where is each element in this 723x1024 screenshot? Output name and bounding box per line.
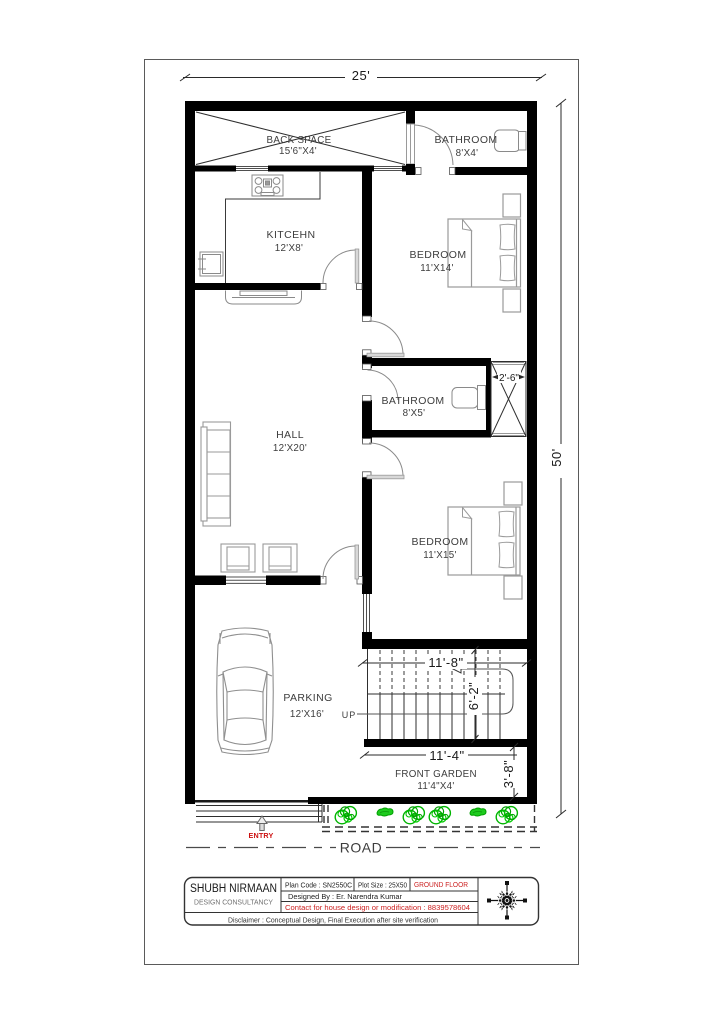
svg-text:12'X16': 12'X16' xyxy=(290,709,324,720)
svg-text:12'X20': 12'X20' xyxy=(273,443,307,454)
svg-text:50': 50' xyxy=(549,448,564,466)
svg-text:11'X14': 11'X14' xyxy=(420,263,453,274)
svg-text:15'6"X4': 15'6"X4' xyxy=(279,146,317,157)
svg-text:11'X15': 11'X15' xyxy=(423,550,456,561)
svg-text:GROUND FLOOR: GROUND FLOOR xyxy=(414,880,468,889)
svg-text:8'X4': 8'X4' xyxy=(456,148,479,159)
svg-text:HALL: HALL xyxy=(276,429,304,441)
svg-text:ROAD: ROAD xyxy=(340,840,382,856)
svg-text:11'-4": 11'-4" xyxy=(429,748,464,763)
svg-text:BEDROOM: BEDROOM xyxy=(409,249,466,261)
svg-text:Plot Size : 25X50: Plot Size : 25X50 xyxy=(358,881,407,890)
svg-text:11'-8": 11'-8" xyxy=(428,655,463,670)
svg-text:BATHROOM: BATHROOM xyxy=(434,134,497,146)
svg-text:DESIGN CONSULTANCY: DESIGN CONSULTANCY xyxy=(194,900,273,907)
svg-text:KITCEHN: KITCEHN xyxy=(267,229,316,241)
svg-text:Plan Code : SN2550C: Plan Code : SN2550C xyxy=(285,881,352,890)
svg-text:BACK SPACE: BACK SPACE xyxy=(267,135,332,146)
svg-text:3'-8": 3'-8" xyxy=(501,760,516,788)
svg-text:BEDROOM: BEDROOM xyxy=(411,536,468,548)
svg-text:Disclaimer : Conceptual Design: Disclaimer : Conceptual Design, Final Ex… xyxy=(228,916,438,925)
svg-text:Designed By : Er. Narendra Kum: Designed By : Er. Narendra Kumar xyxy=(288,892,402,901)
svg-text:ENTRY: ENTRY xyxy=(248,831,273,840)
svg-text:12'X8': 12'X8' xyxy=(275,243,303,254)
svg-text:8'X5': 8'X5' xyxy=(403,408,426,419)
svg-text:UP: UP xyxy=(342,710,357,720)
svg-text:PARKING: PARKING xyxy=(283,692,332,704)
svg-text:11'4"X4': 11'4"X4' xyxy=(417,781,454,792)
svg-text:6'-2": 6'-2" xyxy=(466,682,481,710)
svg-text:BATHROOM: BATHROOM xyxy=(381,395,444,407)
svg-text:2'-6": 2'-6" xyxy=(499,373,519,384)
svg-text:FRONT GARDEN: FRONT GARDEN xyxy=(395,769,477,780)
svg-text:SHUBH NIRMAAN: SHUBH NIRMAAN xyxy=(190,883,277,895)
svg-text:Contact for house design or mo: Contact for house design or modification… xyxy=(285,903,470,912)
svg-text:25': 25' xyxy=(352,68,370,83)
